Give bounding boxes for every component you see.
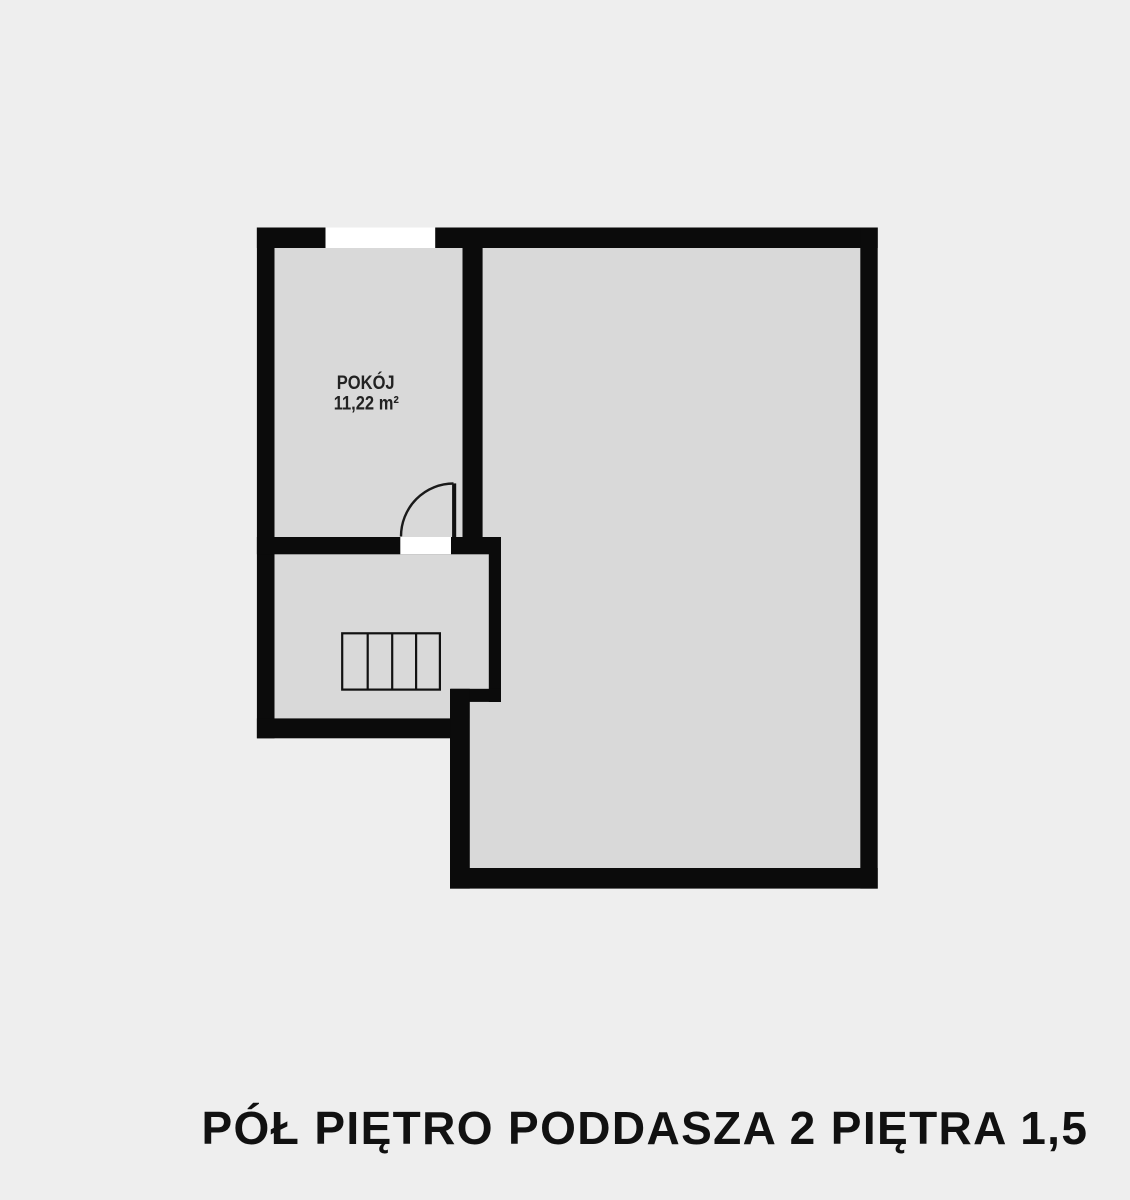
svg-text:11,22 m²: 11,22 m² xyxy=(334,392,399,413)
svg-text:POKÓJ: POKÓJ xyxy=(337,371,395,393)
svg-text:PÓŁ PIĘTRO PODDASZA 2 PIĘTRA 1: PÓŁ PIĘTRO PODDASZA 2 PIĘTRA 1,5 xyxy=(202,1102,1089,1154)
